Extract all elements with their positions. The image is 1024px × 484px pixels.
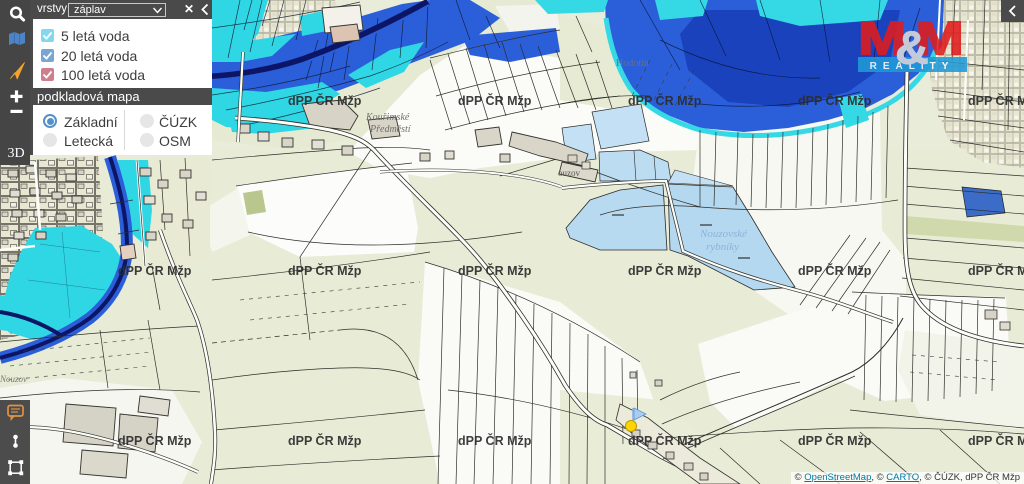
- svg-text:dPP ČR Mžp: dPP ČR Mžp: [628, 263, 702, 278]
- svg-text:Nouzovské: Nouzovské: [699, 228, 748, 240]
- svg-text:dPP ČR Mžp: dPP ČR Mžp: [798, 433, 872, 448]
- svg-text:dPP ČR Mžp: dPP ČR Mžp: [628, 93, 702, 108]
- svg-text:3D: 3D: [7, 146, 24, 161]
- svg-text:dPP ČR Mžp: dPP ČR Mžp: [968, 93, 1024, 108]
- svg-text:&: &: [895, 22, 928, 73]
- svg-text:dPP ČR Mžp: dPP ČR Mžp: [118, 433, 192, 448]
- svg-text:dPP ČR Mžp: dPP ČR Mžp: [628, 433, 702, 448]
- svg-text:dPP ČR Mžp: dPP ČR Mžp: [798, 263, 872, 278]
- svg-text:dPP ČR Mžp: dPP ČR Mžp: [458, 263, 532, 278]
- svg-text:dPP ČR Mžp: dPP ČR Mžp: [798, 93, 872, 108]
- svg-text:dPP ČR Mžp: dPP ČR Mžp: [458, 433, 532, 448]
- svg-text:Kouřimské: Kouřimské: [365, 112, 410, 123]
- svg-text:ouzov: ouzov: [558, 168, 580, 178]
- svg-text:dPP ČR Mžp: dPP ČR Mžp: [288, 263, 362, 278]
- svg-text:rybníky: rybníky: [706, 241, 739, 253]
- svg-text:dPP ČR Mžp: dPP ČR Mžp: [288, 93, 362, 108]
- svg-text:dPP ČR Mžp: dPP ČR Mžp: [968, 263, 1024, 278]
- svg-text:Hodotin: Hodotin: [616, 58, 649, 69]
- svg-text:Nouzov: Nouzov: [0, 374, 27, 384]
- svg-text:Předměstí: Předměstí: [369, 124, 412, 135]
- svg-text:dPP ČR Mžp: dPP ČR Mžp: [288, 433, 362, 448]
- svg-text:dPP ČR Mžp: dPP ČR Mžp: [458, 93, 532, 108]
- svg-text:dPP ČR Mžp: dPP ČR Mžp: [118, 263, 192, 278]
- svg-text:dPP ČR Mžp: dPP ČR Mžp: [968, 433, 1024, 448]
